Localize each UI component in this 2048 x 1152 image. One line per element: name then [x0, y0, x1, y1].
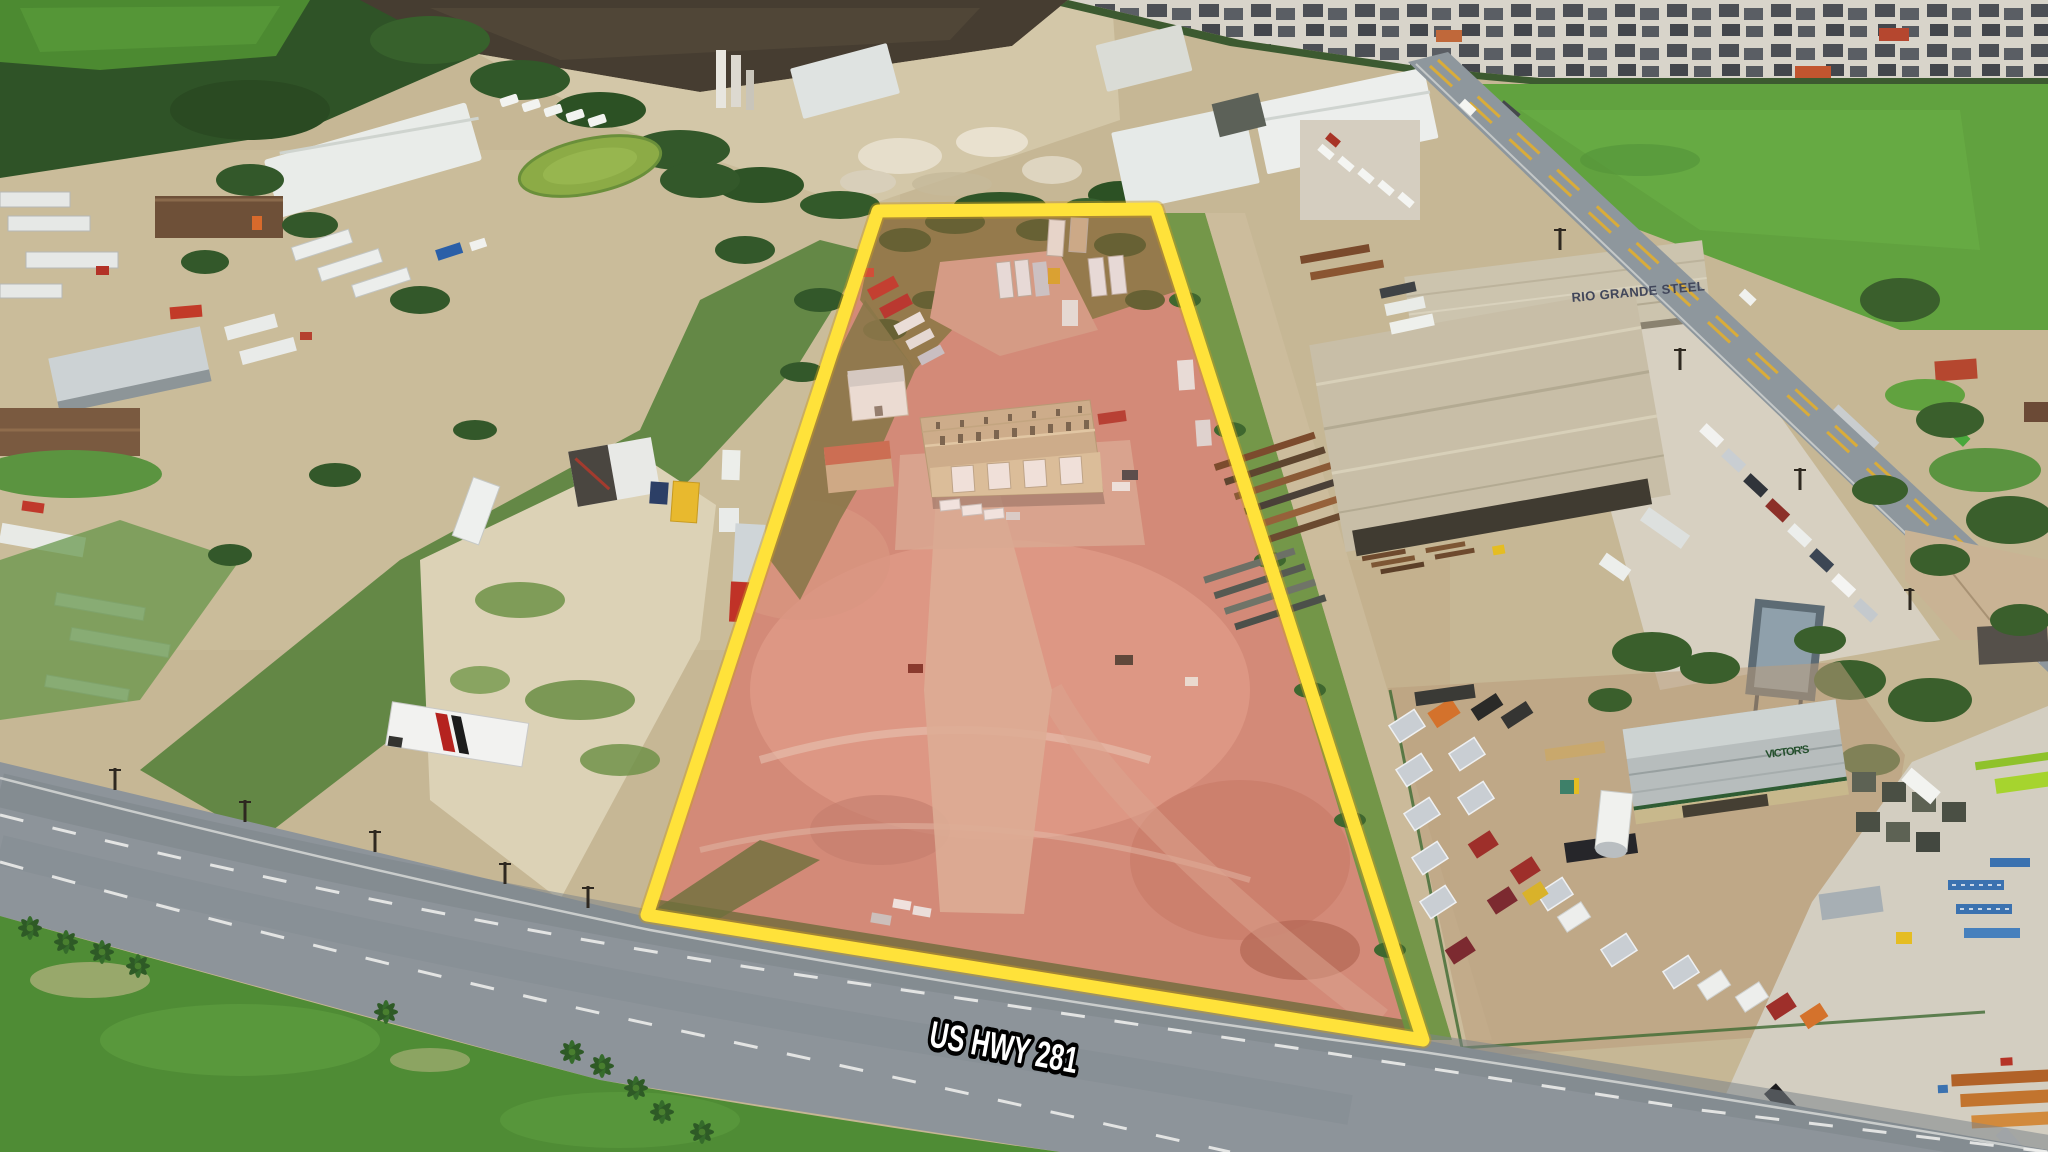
- forklift: [1896, 932, 1912, 944]
- aerial-photo-canvas: RIO GRANDE STEEL VICTOR'S US HWY 281: [0, 0, 2048, 1152]
- aerial-scene: RIO GRANDE STEEL VICTOR'S US HWY 281: [0, 0, 2048, 1152]
